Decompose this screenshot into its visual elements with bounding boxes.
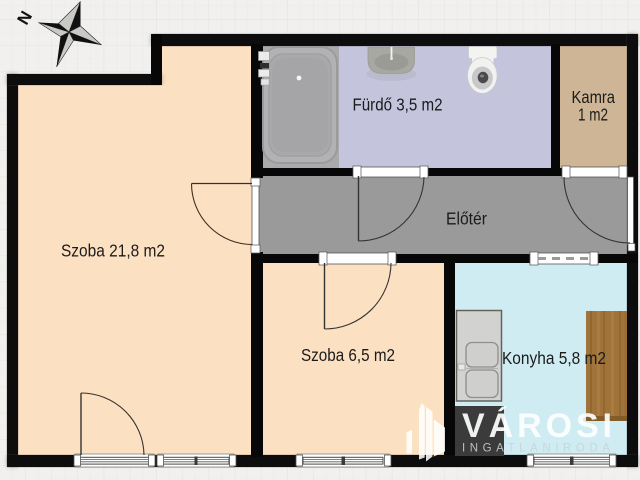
svg-text:1 m2: 1 m2 <box>578 105 608 125</box>
svg-text:VÁROSI: VÁROSI <box>462 407 612 445</box>
svg-text:Szoba 6,5 m2: Szoba 6,5 m2 <box>301 345 395 365</box>
svg-text:Előtér: Előtér <box>446 209 487 229</box>
svg-text:Szoba 21,8 m2: Szoba 21,8 m2 <box>61 241 165 261</box>
svg-text:Konyha 5,8 m2: Konyha 5,8 m2 <box>502 348 606 368</box>
svg-text:Fürdő 3,5 m2: Fürdő 3,5 m2 <box>353 95 443 115</box>
